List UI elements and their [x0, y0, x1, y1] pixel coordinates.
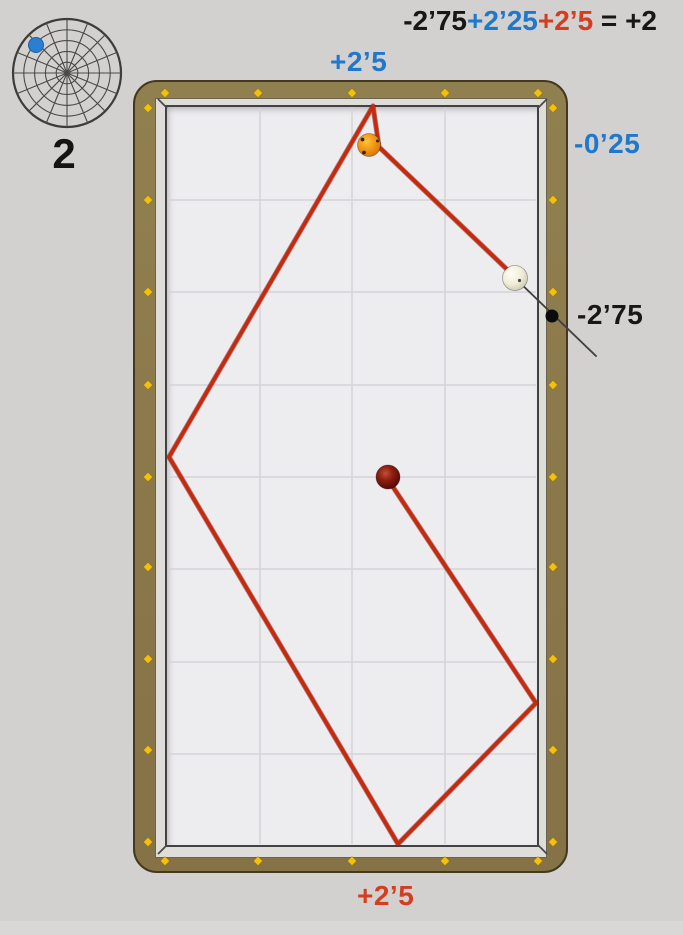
cue-ball-contact-indicator	[0, 4, 134, 134]
right-rail-lower-value: -2’75	[577, 299, 643, 331]
object-ball-orange	[358, 134, 381, 157]
formula-result-value: = +2	[593, 5, 657, 36]
formula-cueball-value: -2’75	[403, 5, 467, 36]
bottom-edge-strip	[0, 921, 683, 935]
top-rail-value: +2’5	[330, 46, 387, 78]
formula-arrival-value: +2’5	[538, 5, 593, 36]
right-rail-upper-value: -0’25	[574, 128, 640, 160]
bottom-rail-value: +2’5	[357, 880, 414, 912]
diamond-system-formula: -2’75+2’25+2’5 = +2	[403, 5, 657, 37]
billiard-lesson-frame: { "title_context": "three-cushion billia…	[0, 0, 683, 935]
polar-grid	[13, 19, 121, 127]
formula-correction-value: +2’25	[467, 5, 538, 36]
shot-number: 2	[36, 130, 92, 178]
grid-lines	[168, 108, 536, 844]
object-ball-red	[376, 465, 400, 489]
cue-ball	[503, 266, 528, 291]
hit-point-dot	[29, 38, 44, 53]
rail-aim-point-dot	[546, 310, 559, 323]
